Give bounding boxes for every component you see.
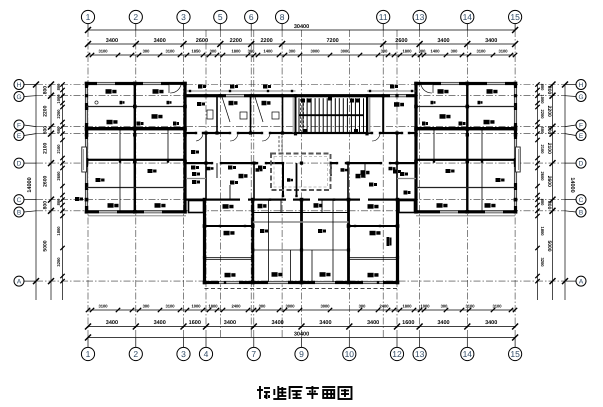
svg-text:B: B — [579, 209, 583, 216]
svg-text:300: 300 — [210, 49, 218, 54]
svg-text:14000: 14000 — [27, 177, 33, 192]
svg-text:3: 3 — [181, 12, 186, 22]
svg-text:300: 300 — [419, 49, 427, 54]
svg-text:1: 1 — [86, 12, 91, 22]
svg-text:2200: 2200 — [546, 106, 552, 117]
svg-text:800: 800 — [56, 83, 61, 91]
svg-text:15: 15 — [510, 349, 520, 359]
svg-text:E: E — [579, 133, 584, 140]
svg-text:5000: 5000 — [546, 240, 552, 251]
svg-text:1800: 1800 — [231, 49, 241, 54]
svg-text:B: B — [17, 209, 21, 216]
svg-text:3000: 3000 — [285, 304, 295, 309]
svg-text:A: A — [17, 278, 22, 285]
svg-text:2200: 2200 — [540, 109, 545, 119]
svg-text:3400: 3400 — [154, 38, 166, 44]
svg-text:30400: 30400 — [294, 332, 309, 338]
svg-text:3400: 3400 — [154, 320, 166, 326]
svg-text:F: F — [17, 122, 21, 129]
svg-text:800: 800 — [56, 198, 61, 206]
svg-text:1000: 1000 — [540, 94, 545, 104]
svg-text:3400: 3400 — [224, 320, 236, 326]
svg-text:500: 500 — [56, 126, 61, 134]
svg-text:F: F — [579, 122, 583, 129]
svg-text:3400: 3400 — [367, 320, 379, 326]
svg-text:3400: 3400 — [485, 320, 497, 326]
svg-text:H: H — [579, 82, 584, 89]
svg-text:2200: 2200 — [56, 109, 61, 119]
svg-text:500: 500 — [546, 126, 552, 135]
svg-text:300: 300 — [381, 49, 389, 54]
svg-text:500: 500 — [540, 127, 545, 135]
svg-text:300: 300 — [289, 49, 297, 54]
svg-text:300: 300 — [248, 49, 256, 54]
svg-text:1: 1 — [86, 349, 91, 359]
svg-text:3400: 3400 — [437, 320, 449, 326]
svg-text:2600: 2600 — [196, 38, 208, 44]
svg-text:500: 500 — [43, 126, 49, 135]
svg-text:13: 13 — [415, 12, 425, 22]
svg-text:800: 800 — [540, 84, 545, 92]
svg-text:3200: 3200 — [540, 257, 545, 267]
svg-text:3400: 3400 — [106, 38, 118, 44]
svg-text:300: 300 — [441, 304, 449, 309]
svg-text:3000: 3000 — [340, 49, 350, 54]
svg-text:1600: 1600 — [402, 320, 414, 326]
svg-text:2: 2 — [133, 12, 138, 22]
svg-text:A: A — [579, 278, 584, 285]
svg-text:3400: 3400 — [106, 320, 118, 326]
svg-text:1800: 1800 — [56, 226, 61, 236]
svg-text:10: 10 — [345, 349, 355, 359]
svg-text:14: 14 — [463, 349, 473, 359]
svg-text:800: 800 — [540, 199, 545, 207]
svg-text:G: G — [578, 94, 583, 101]
svg-text:3100: 3100 — [498, 49, 508, 54]
svg-text:3000: 3000 — [320, 304, 330, 309]
svg-text:15: 15 — [510, 12, 520, 22]
svg-text:2400: 2400 — [379, 304, 389, 309]
svg-text:3100: 3100 — [98, 49, 108, 54]
svg-text:2600: 2600 — [540, 171, 545, 181]
svg-text:H: H — [17, 82, 22, 89]
svg-text:2200: 2200 — [43, 105, 49, 116]
svg-text:14000: 14000 — [569, 177, 575, 192]
svg-text:7: 7 — [251, 349, 256, 359]
svg-text:D: D — [579, 160, 584, 167]
svg-text:3100: 3100 — [465, 304, 475, 309]
svg-text:1600: 1600 — [189, 320, 201, 326]
svg-text:300: 300 — [143, 49, 151, 54]
svg-text:30400: 30400 — [294, 24, 309, 30]
svg-text:300: 300 — [259, 304, 267, 309]
svg-text:1000: 1000 — [56, 94, 61, 104]
svg-text:2100: 2100 — [546, 143, 552, 154]
svg-text:800: 800 — [546, 201, 552, 210]
svg-text:300: 300 — [143, 304, 151, 309]
svg-text:1000: 1000 — [191, 304, 201, 309]
svg-text:1800: 1800 — [402, 49, 412, 54]
svg-text:2600: 2600 — [43, 176, 49, 187]
svg-text:1850: 1850 — [191, 49, 201, 54]
svg-text:5: 5 — [218, 12, 223, 22]
svg-text:1400: 1400 — [263, 49, 273, 54]
svg-text:2100: 2100 — [56, 144, 61, 154]
svg-text:12: 12 — [392, 349, 402, 359]
svg-text:G: G — [16, 94, 21, 101]
svg-text:4: 4 — [204, 349, 209, 359]
svg-text:3400: 3400 — [319, 320, 331, 326]
svg-text:5000: 5000 — [43, 240, 49, 251]
svg-text:800: 800 — [546, 86, 552, 95]
svg-text:7200: 7200 — [326, 38, 338, 44]
svg-text:3100: 3100 — [165, 304, 175, 309]
svg-text:3100: 3100 — [476, 49, 486, 54]
svg-text:2600: 2600 — [56, 171, 61, 181]
svg-text:800: 800 — [43, 86, 49, 95]
svg-text:9: 9 — [299, 349, 304, 359]
svg-text:3400: 3400 — [437, 38, 449, 44]
svg-text:2600: 2600 — [395, 38, 407, 44]
svg-text:11: 11 — [379, 12, 388, 22]
svg-text:3100: 3100 — [165, 49, 175, 54]
svg-text:C: C — [17, 197, 22, 204]
svg-text:2400: 2400 — [231, 304, 241, 309]
svg-text:3400: 3400 — [271, 320, 283, 326]
svg-text:1000: 1000 — [420, 304, 430, 309]
svg-text:2600: 2600 — [546, 176, 552, 187]
svg-text:3400: 3400 — [485, 38, 497, 44]
svg-text:2: 2 — [133, 349, 138, 359]
svg-text:1800: 1800 — [402, 304, 412, 309]
svg-text:1800: 1800 — [540, 226, 545, 236]
svg-text:300: 300 — [451, 49, 459, 54]
svg-text:D: D — [17, 160, 22, 167]
svg-text:2100: 2100 — [540, 144, 545, 154]
svg-text:800: 800 — [43, 201, 49, 210]
svg-text:C: C — [579, 197, 584, 204]
svg-text:2200: 2200 — [230, 38, 242, 44]
svg-text:14: 14 — [463, 12, 473, 22]
svg-text:3100: 3100 — [98, 304, 108, 309]
svg-text:2200: 2200 — [260, 38, 272, 44]
svg-text:3000: 3000 — [310, 49, 320, 54]
svg-text:300: 300 — [359, 304, 367, 309]
svg-text:13: 13 — [415, 349, 425, 359]
svg-text:E: E — [17, 133, 22, 140]
svg-text:1800: 1800 — [208, 304, 218, 309]
svg-text:8: 8 — [280, 12, 285, 22]
svg-text:2100: 2100 — [43, 143, 49, 154]
svg-text:6: 6 — [249, 12, 254, 22]
svg-text:3100: 3100 — [492, 304, 502, 309]
svg-text:1400: 1400 — [430, 49, 440, 54]
svg-text:3200: 3200 — [56, 257, 61, 267]
svg-text:3: 3 — [181, 349, 186, 359]
